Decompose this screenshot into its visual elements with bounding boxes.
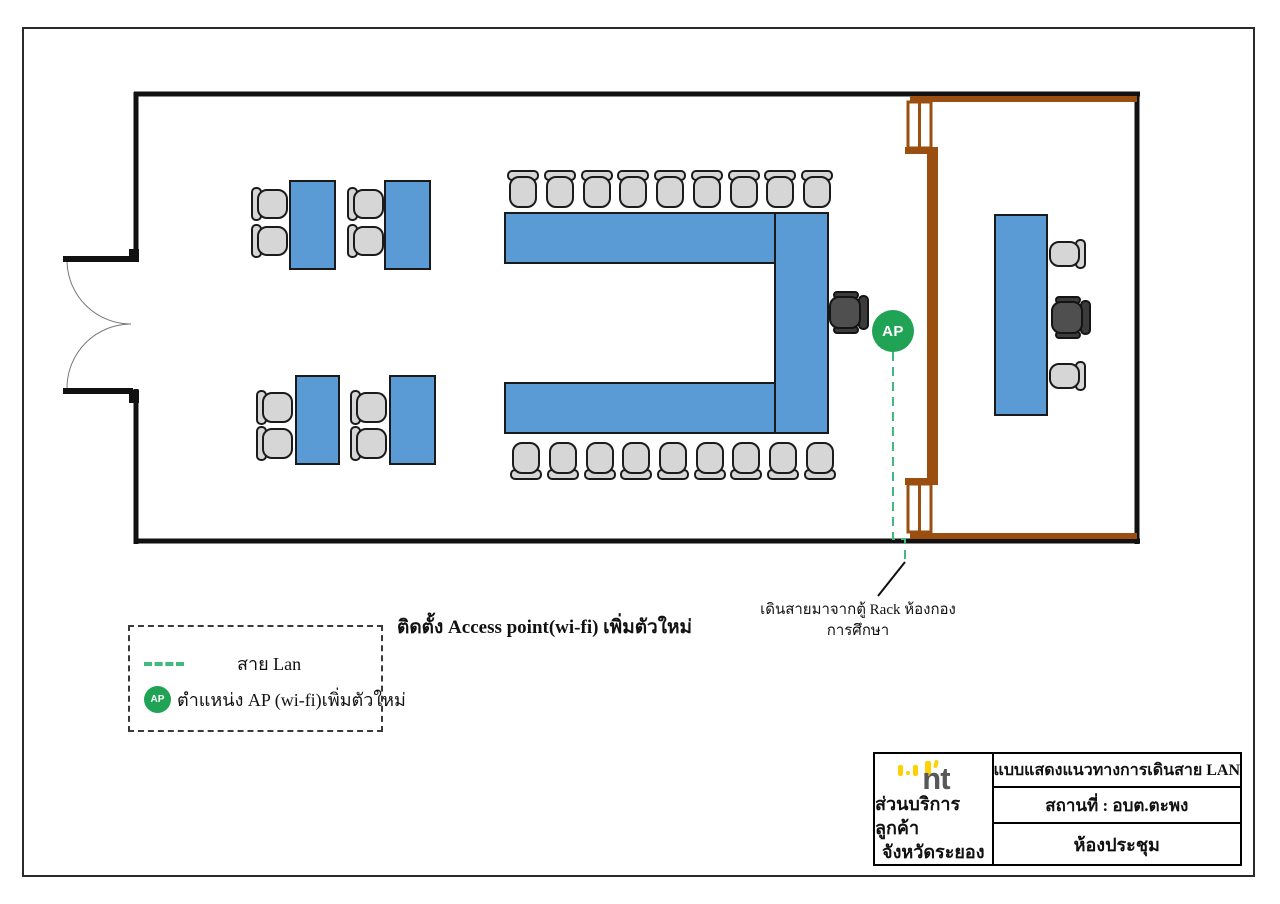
table	[296, 376, 339, 464]
chair	[807, 443, 833, 473]
lan-cable-route	[893, 352, 905, 561]
table	[505, 213, 775, 263]
chair	[510, 177, 536, 207]
partition-wall	[910, 533, 1137, 539]
table	[390, 376, 435, 464]
table	[290, 181, 335, 269]
chair	[694, 177, 720, 207]
chair	[1050, 364, 1079, 388]
chair	[587, 443, 613, 473]
chair	[357, 429, 386, 458]
chair	[354, 227, 383, 255]
chair	[767, 177, 793, 207]
chair	[258, 227, 287, 255]
cable-source-note-line1: เดินสายมาจากตู้ Rack ห้องกอง	[758, 600, 958, 621]
legend-row-ap: AP ตำแหน่ง AP (wi-fi)เพิ่มตัวใหม่	[144, 685, 406, 714]
legend-ap-badge: AP	[144, 686, 171, 713]
legend-ap-label: ตำแหน่ง AP (wi-fi)เพิ่มตัวใหม่	[177, 685, 406, 714]
legend-box: สาย Lan AP ตำแหน่ง AP (wi-fi)เพิ่มตัวใหม…	[128, 625, 383, 732]
exec-chair	[1052, 302, 1082, 333]
ap-marker: AP	[872, 310, 914, 352]
door-leaf	[63, 256, 133, 262]
legend-ap-badge-label: AP	[151, 694, 165, 705]
chair	[357, 393, 386, 422]
install-note: ติดตั้ง Access point(wi-fi) เพิ่มตัวใหม่	[397, 612, 692, 642]
cable-source-note: เดินสายมาจากตู้ Rack ห้องกอง การศึกษา	[758, 600, 958, 642]
chair	[657, 177, 683, 207]
chair	[804, 177, 830, 207]
exec-chair	[830, 297, 860, 328]
nt-logo-dot	[906, 771, 910, 775]
chair	[620, 177, 646, 207]
lan-dashed-line-sample	[144, 662, 184, 666]
cable-source-note-line2: การศึกษา	[758, 621, 958, 642]
legend-row-lan: สาย Lan	[144, 649, 301, 678]
ap-marker-label: AP	[882, 323, 904, 340]
table	[385, 181, 430, 269]
chair	[263, 429, 292, 458]
nt-logo: nt	[896, 758, 970, 792]
chair	[584, 177, 610, 207]
annotation-pointer-line	[878, 562, 905, 596]
chair	[354, 190, 383, 218]
partition-wall	[910, 96, 1137, 102]
door-jamb	[129, 249, 139, 262]
partition-wall	[927, 152, 938, 482]
nt-logo-mark	[898, 765, 903, 776]
chair	[513, 443, 539, 473]
nt-logo-text: nt	[922, 763, 949, 794]
drawing-title: แบบแสดงแนวทางการเดินสาย LAN	[994, 754, 1240, 788]
door-leaf	[63, 388, 133, 394]
chair	[623, 443, 649, 473]
chair	[550, 443, 576, 473]
org-name-line1: ส่วนบริการลูกค้า	[875, 792, 992, 840]
legend-lan-label: สาย Lan	[237, 649, 301, 678]
chair	[263, 393, 292, 422]
chair	[547, 177, 573, 207]
chair	[731, 177, 757, 207]
chair	[1050, 242, 1079, 266]
table	[505, 383, 775, 433]
door-jamb	[129, 390, 139, 403]
drawing-location: สถานที่ : อบต.ตะพง	[994, 788, 1240, 824]
chair	[697, 443, 723, 473]
door-swing-arc	[67, 262, 131, 324]
title-block-info-cell: แบบแสดงแนวทางการเดินสาย LAN สถานที่ : อบ…	[994, 754, 1240, 864]
chair	[258, 190, 287, 218]
org-name-line2: จังหวัดระยอง	[882, 840, 984, 864]
drawing-room: ห้องประชุม	[994, 824, 1240, 864]
nt-logo-mark	[913, 765, 918, 776]
chair	[770, 443, 796, 473]
chair	[660, 443, 686, 473]
title-block: nt ส่วนบริการลูกค้า จังหวัดระยอง แบบแสดง…	[873, 752, 1242, 866]
table	[775, 213, 828, 433]
door-swing-arc	[67, 324, 131, 388]
table	[995, 215, 1047, 415]
chair	[733, 443, 759, 473]
title-block-org-cell: nt ส่วนบริการลูกค้า จังหวัดระยอง	[875, 754, 994, 864]
